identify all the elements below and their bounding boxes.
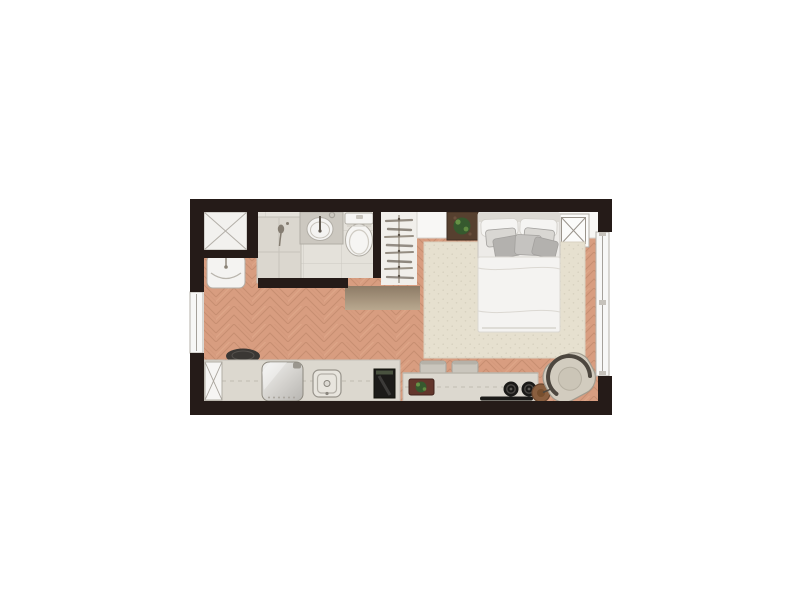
vanity-sink	[300, 212, 343, 244]
entry-door-panel	[345, 286, 420, 310]
left-window	[190, 292, 203, 353]
sink-faucet-icon	[325, 392, 328, 395]
service-shaft	[205, 362, 222, 400]
potted-plant-shelf	[447, 212, 478, 240]
bar-stool-1	[420, 361, 446, 374]
toilet	[345, 213, 373, 256]
kitchen-sink	[313, 370, 341, 397]
built-in-appliance	[374, 369, 395, 398]
wall-shower-bottom	[190, 250, 258, 258]
duvet	[478, 257, 560, 332]
bathroom-cabinet	[257, 217, 301, 283]
refrigerator	[262, 362, 303, 401]
wall-bathroom-bottom	[258, 278, 348, 288]
floor-plan-svg	[0, 0, 800, 600]
bar-stool-2	[452, 361, 478, 374]
washing-machine	[207, 255, 245, 288]
wardrobe-closet	[381, 212, 417, 285]
counter-ledge	[480, 397, 533, 401]
wall-top	[190, 199, 612, 212]
double-bed	[478, 213, 560, 332]
shower-box	[204, 212, 247, 250]
wall-left-lower	[190, 353, 204, 401]
wall-bottom	[190, 401, 612, 415]
drain-icon	[324, 381, 330, 387]
plant-icon	[454, 218, 471, 235]
potted-plant-counter	[409, 379, 434, 395]
right-window	[596, 232, 609, 376]
wall-bathroom-closet	[373, 212, 381, 278]
floor-plan-canvas	[0, 0, 800, 600]
wall-right-lower	[598, 376, 612, 401]
wall-right-upper	[598, 212, 612, 232]
fridge-handle	[293, 363, 301, 369]
